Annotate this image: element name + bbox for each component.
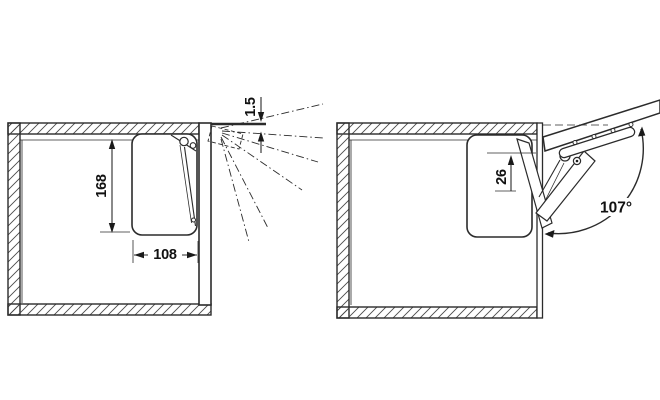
swing-position-line-2 [222,131,323,138]
technical-drawing: 1.5 168 108 [0,0,660,400]
depth-dimension-label: 108 [153,247,177,263]
top-panel-section [8,123,199,134]
depth-arrow-right [187,252,197,258]
view-flap-closed: 1.5 168 108 [8,97,323,315]
bottom-panel-section [337,307,537,318]
swing-position-line-3 [222,133,318,162]
swing-position-line-6 [221,139,249,242]
flap-open-assembly [543,100,660,153]
gap-arrow-up [258,132,264,142]
side-panel-section [8,123,20,315]
bracket-screw-4 [629,123,633,127]
height-arrow-bottom [109,223,115,233]
flap-closed-panel [199,123,211,305]
dimension-depth: 108 [133,240,198,263]
height-dimension-label: 168 [94,174,110,198]
pivot-dimension-label: 26 [494,169,510,185]
angle-arrow-lower [545,230,555,238]
top-panel-section [337,123,537,134]
dimension-height: 168 [94,139,130,233]
bracket-screw-3 [611,129,615,133]
opening-angle-label: 107° [600,200,632,217]
bottom-panel-section [8,304,211,315]
pivot-center-secondary [576,160,579,163]
view-flap-open: 26 107° [337,100,660,318]
side-panel-section [337,123,349,318]
mechanism-body [132,134,197,235]
drawing-canvas: 1.5 168 108 [0,0,660,400]
bracket-screw-1 [573,141,577,145]
height-arrow-top [109,139,115,149]
dimension-gap: 1.5 [211,97,266,153]
gap-dimension-label: 1.5 [243,97,259,117]
pivot-point-main [180,137,188,145]
bracket-screw-2 [592,135,596,139]
angle-arrow-upper [638,127,645,137]
pivot-point-secondary [190,143,196,149]
swing-position-line-4 [222,135,302,190]
depth-arrow-left [134,252,144,258]
lift-mechanism-housing [132,134,197,235]
arm-end-pivot [192,218,196,222]
